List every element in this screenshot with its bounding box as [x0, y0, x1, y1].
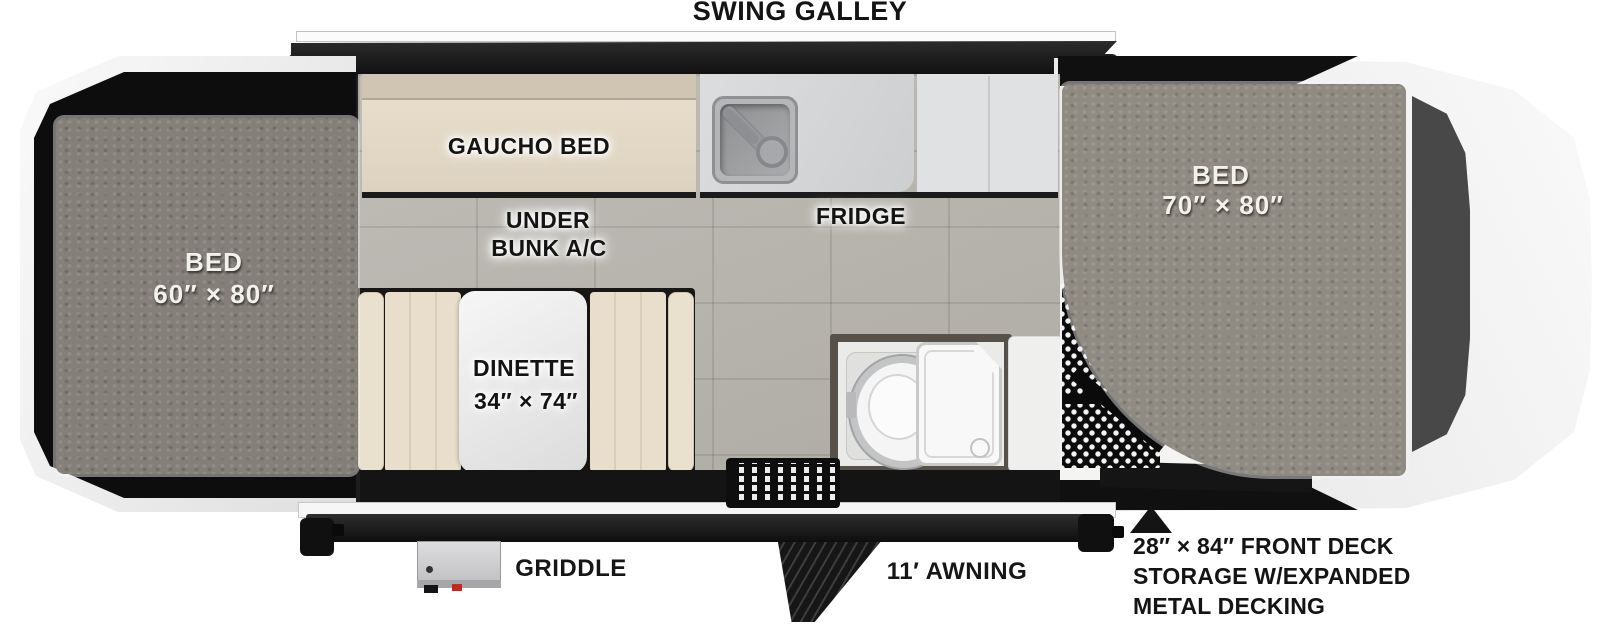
awning-knob-right [1112, 526, 1124, 538]
awning-end-cap-right [1078, 514, 1114, 552]
front-deck-annotation-line1: 28″ × 84″ FRONT DECK [1133, 531, 1411, 561]
awning-knob-left [332, 524, 344, 536]
right-tent-side-panel [1412, 96, 1470, 452]
bed-right-size-label: 70″ × 80″ [1162, 190, 1283, 221]
bed-right-label: BED [1192, 160, 1250, 191]
awning-roll-bar [306, 514, 1112, 542]
front-deck-annotation-line3: METAL DECKING [1133, 591, 1411, 621]
awning-label: 11′ AWNING [887, 558, 1028, 586]
entry-step-platform [726, 458, 840, 508]
griddle-knob [426, 566, 433, 573]
awning-end-cap-left [300, 518, 334, 556]
gaucho-bed-backrest [362, 74, 696, 100]
griddle-latch [452, 584, 462, 591]
counter-shadow [700, 192, 1058, 198]
fridge-cabinet-seam [988, 76, 990, 192]
bed-left-size-label: 60″ × 80″ [153, 279, 274, 310]
faucet-sprayer [756, 136, 788, 168]
dinette-pad-right [668, 292, 694, 472]
dinette-bench-left [385, 292, 461, 472]
deck-pointer-icon [1130, 506, 1172, 533]
dinette-pad-left [358, 292, 384, 472]
bottom-wall-left [360, 470, 728, 506]
dinette-table [459, 291, 587, 473]
bath-side-panel [1008, 336, 1064, 472]
swing-galley-counter [291, 41, 1117, 75]
rv-floorplan: SWING GALLEY [0, 0, 1600, 624]
griddle-label: GRIDDLE [515, 555, 627, 583]
bottom-wall-right [838, 470, 1060, 506]
front-deck-annotation: 28″ × 84″ FRONT DECK STORAGE W/EXPANDED … [1133, 531, 1411, 621]
fold-out-step [766, 540, 882, 622]
dinette-size-label: 34″ × 74″ [474, 388, 578, 415]
page-title: SWING GALLEY [0, 0, 1600, 27]
dinette-bench-right [590, 292, 666, 472]
dinette-label: DINETTE [473, 355, 575, 382]
gaucho-bed-label: GAUCHO BED [448, 133, 610, 160]
toilet-hinge [846, 392, 856, 418]
under-bunk-ac-label-line2: BUNK A/C [491, 235, 607, 262]
bed-left-label: BED [185, 247, 243, 278]
front-deck-annotation-line2: STORAGE W/EXPANDED [1133, 561, 1411, 591]
griddle [417, 541, 501, 584]
gaucho-bed-shadow [362, 192, 696, 198]
griddle-foot [424, 585, 438, 593]
under-bunk-ac-label-line1: UNDER [506, 207, 590, 234]
swing-galley-trim [296, 31, 1116, 42]
shower-drain [970, 438, 990, 458]
fridge-label: FRIDGE [816, 203, 906, 230]
